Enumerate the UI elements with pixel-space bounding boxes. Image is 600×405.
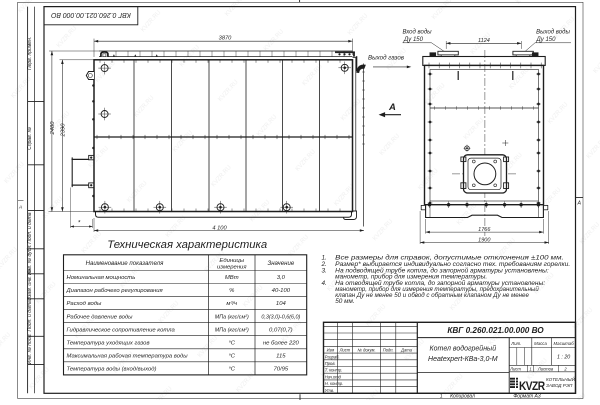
svg-text:Подп.: Подп. xyxy=(383,348,394,353)
svg-text:2480: 2480 xyxy=(50,121,56,136)
svg-text:Диапазон рабочего регулировани: Диапазон рабочего регулирования xyxy=(66,288,164,294)
svg-text:Значение: Значение xyxy=(267,260,294,267)
svg-text:измерения: измерения xyxy=(217,265,247,271)
svg-text:Инв. № подл.: Инв. № подл. xyxy=(27,333,33,364)
svg-text:А: А xyxy=(18,205,22,210)
svg-text:клапан Ду не менее 50 и обвод: клапан Ду не менее 50 и обвод с обратным… xyxy=(335,291,529,299)
svg-text:Подп. и дата: Подп. и дата xyxy=(27,212,33,244)
svg-text:1: 1 xyxy=(440,394,443,400)
svg-text:Номинальная мощность: Номинальная мощность xyxy=(67,275,136,281)
svg-text:Температура воды (вход/выход): Температура воды (вход/выход) xyxy=(67,366,157,372)
svg-text:4.: 4. xyxy=(322,280,327,287)
svg-text:1: 1 xyxy=(529,366,531,371)
svg-text:2390: 2390 xyxy=(61,123,67,138)
svg-text:0,3(3,0)-0,6(6,0): 0,3(3,0)-0,6(6,0) xyxy=(261,314,300,320)
svg-text:Наименование показателя: Наименование показателя xyxy=(86,260,164,267)
svg-text:1900: 1900 xyxy=(478,237,491,243)
svg-text:Масштаб: Масштаб xyxy=(554,341,575,346)
svg-text:Листов: Листов xyxy=(537,366,554,371)
svg-text:Утв.: Утв. xyxy=(325,388,334,393)
svg-text:Пров.: Пров. xyxy=(325,361,336,366)
svg-text:КОТЕЛЬНЫЙ: КОТЕЛЬНЫЙ xyxy=(546,375,576,382)
svg-text:Взам. инв. №: Взам. инв. № xyxy=(27,269,33,301)
svg-text:70/95: 70/95 xyxy=(273,366,288,372)
svg-text:МВт: МВт xyxy=(225,275,239,281)
svg-text:А: А xyxy=(576,201,581,207)
svg-text:3,0: 3,0 xyxy=(277,275,286,281)
svg-text:Техническая характеристика: Техническая характеристика xyxy=(107,239,267,251)
svg-text:Лист: Лист xyxy=(339,348,351,353)
svg-text:м³/ч: м³/ч xyxy=(226,301,237,307)
svg-text:1766: 1766 xyxy=(478,227,491,233)
svg-text:KVZR: KVZR xyxy=(519,380,545,393)
svg-text:1 : 20: 1 : 20 xyxy=(557,355,570,361)
svg-text:°С: °С xyxy=(228,366,235,372)
svg-text:%: % xyxy=(229,288,234,294)
svg-text:Копировал: Копировал xyxy=(450,394,475,400)
svg-text:Ду 150: Ду 150 xyxy=(536,37,557,43)
svg-text:3.: 3. xyxy=(322,267,327,274)
svg-text:Формат А3: Формат А3 xyxy=(513,394,541,400)
svg-text:4 100: 4 100 xyxy=(212,225,227,231)
svg-text:Выход воды: Выход воды xyxy=(536,30,570,36)
svg-text:КВГ 0.260.021.00.000 ВО: КВГ 0.260.021.00.000 ВО xyxy=(447,326,544,335)
svg-text:А: А xyxy=(388,102,396,113)
svg-text:Лист: Лист xyxy=(509,366,521,371)
svg-text:Дата: Дата xyxy=(400,348,413,353)
svg-text:Перв. примен.: Перв. примен. xyxy=(27,37,33,70)
svg-text:1124: 1124 xyxy=(478,38,490,44)
svg-text:Подп. и дата: Подп. и дата xyxy=(27,300,33,332)
svg-text:3870: 3870 xyxy=(219,36,232,42)
svg-text:Температура уходящих газов: Температура уходящих газов xyxy=(67,340,150,346)
svg-text:Рабочее давление воды: Рабочее давление воды xyxy=(67,314,134,320)
svg-text:МПа (кгс/см²): МПа (кгс/см²) xyxy=(215,314,249,320)
svg-text:Справ. №: Справ. № xyxy=(27,126,33,149)
svg-text:Единицы: Единицы xyxy=(219,258,244,264)
svg-text:№ докум.: № докум. xyxy=(358,348,376,353)
svg-text:Лит.: Лит. xyxy=(510,341,521,346)
svg-text:Максимальная рабочая температу: Максимальная рабочая температура воды xyxy=(67,353,189,359)
svg-text:Т. контр.: Т. контр. xyxy=(325,368,343,373)
svg-text:40-100: 40-100 xyxy=(272,288,291,294)
svg-text:°С: °С xyxy=(228,353,235,359)
svg-text:Выход газов: Выход газов xyxy=(368,54,405,61)
svg-text:Изм: Изм xyxy=(327,348,335,353)
svg-text:Масса: Масса xyxy=(534,341,547,346)
svg-text:Вход воды: Вход воды xyxy=(402,30,432,36)
svg-text:0,07(0,7): 0,07(0,7) xyxy=(269,327,293,333)
svg-text:Гидравлическое сопротивление к: Гидравлическое сопротивление котла xyxy=(67,327,176,333)
svg-text:Ду 150: Ду 150 xyxy=(403,37,424,43)
svg-text:Разраб.: Разраб. xyxy=(325,354,340,359)
svg-text:Нач.отд: Нач.отд xyxy=(325,374,342,379)
svg-text:Расход воды: Расход воды xyxy=(67,301,103,307)
svg-text:Heatexpert-КВа-3,0-М: Heatexpert-КВа-3,0-М xyxy=(428,356,498,363)
svg-text:50 мм.: 50 мм. xyxy=(335,298,354,305)
svg-text:МПа (кгс/см²): МПа (кгс/см²) xyxy=(215,327,249,333)
svg-text:не более 220: не более 220 xyxy=(263,340,300,346)
svg-text:°С: °С xyxy=(228,340,235,346)
svg-text:115: 115 xyxy=(276,353,286,359)
svg-text:Котел водогрейный: Котел водогрейный xyxy=(430,345,497,353)
svg-text:ЗАВОД РЭП: ЗАВОД РЭП xyxy=(546,383,573,388)
svg-text:КВГ 0.260.021.00.000 ВО: КВГ 0.260.021.00.000 ВО xyxy=(51,11,131,18)
svg-text:104: 104 xyxy=(276,301,287,307)
svg-text:Н. контр.: Н. контр. xyxy=(325,381,343,386)
